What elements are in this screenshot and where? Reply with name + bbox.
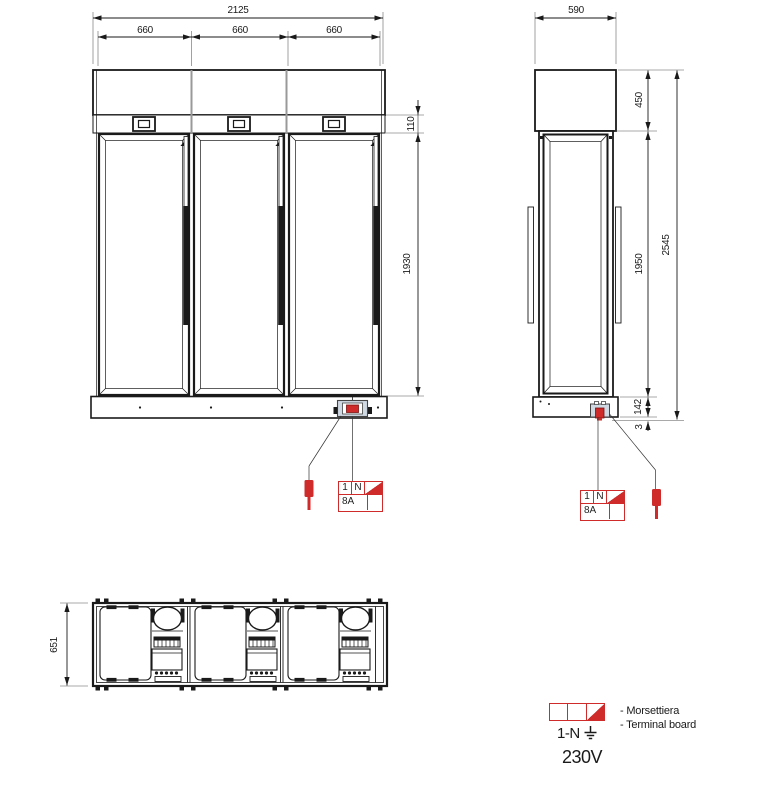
glass-door-2 [194,134,284,395]
glass-door-3 [289,134,379,395]
dim-header-height: 110 [406,116,417,131]
dim-door-width-3: 660 [323,25,344,36]
side-view [528,70,621,421]
dim-door-width-1: 660 [134,25,155,36]
power-plug-icon [305,480,314,510]
terminal-phase: 1 [581,491,594,503]
door-handle-profile [616,207,622,323]
dim-side-depth: 590 [565,5,586,16]
dim-total-height: 2545 [661,234,672,255]
legend-supply: 1-N [557,725,598,742]
controller-display [323,117,345,131]
glass-door-1 [99,134,189,395]
power-plug-icon [652,489,661,519]
refrigeration-module-3 [288,606,372,682]
dim-front-total-width: 2125 [225,5,252,16]
terminal-rating-label: 1 N 8A [338,481,383,512]
dim-canopy-height: 450 [634,92,645,108]
controller-display [133,117,155,131]
leader-lines [309,414,656,490]
refrigeration-module-2 [195,606,279,682]
terminal-board-symbol [365,482,382,494]
dim-base-height: 142 [632,399,643,415]
terminal-neutral: N [594,491,607,503]
legend-voltage: 230V [562,747,602,768]
earth-ground-icon [583,726,598,741]
terminal-neutral: N [352,482,365,494]
top-view [93,599,387,691]
legend-note-italian: - Morsettiera [620,705,679,717]
side-panel [544,135,608,394]
dim-foot-height: 3 [634,424,645,429]
terminal-fuse-rating: 8A [339,495,368,510]
canopy [93,70,385,115]
terminal-rating-label: 1 N 8A [580,490,625,521]
technical-drawing-canvas [0,0,760,785]
door-handle-profile [528,207,534,323]
legend-note-english: - Terminal board [620,719,696,731]
refrigeration-module-1 [100,606,184,682]
technical-drawing-page: 2125 660 660 660 110 1930 590 450 1950 1… [0,0,760,785]
dim-top-depth: 651 [49,637,60,653]
legend-terminal-symbol [549,703,605,721]
supply-text: 1-N [557,725,580,742]
terminal-fuse-rating: 8A [581,504,610,519]
dim-door-height: 1930 [402,253,413,274]
terminal-phase: 1 [339,482,352,494]
terminal-board-symbol [607,491,624,503]
canopy-side [535,70,616,131]
dim-door-width-2: 660 [229,25,250,36]
controller-display [228,117,250,131]
dim-glass-height: 1950 [634,253,645,274]
front-view [91,70,387,418]
